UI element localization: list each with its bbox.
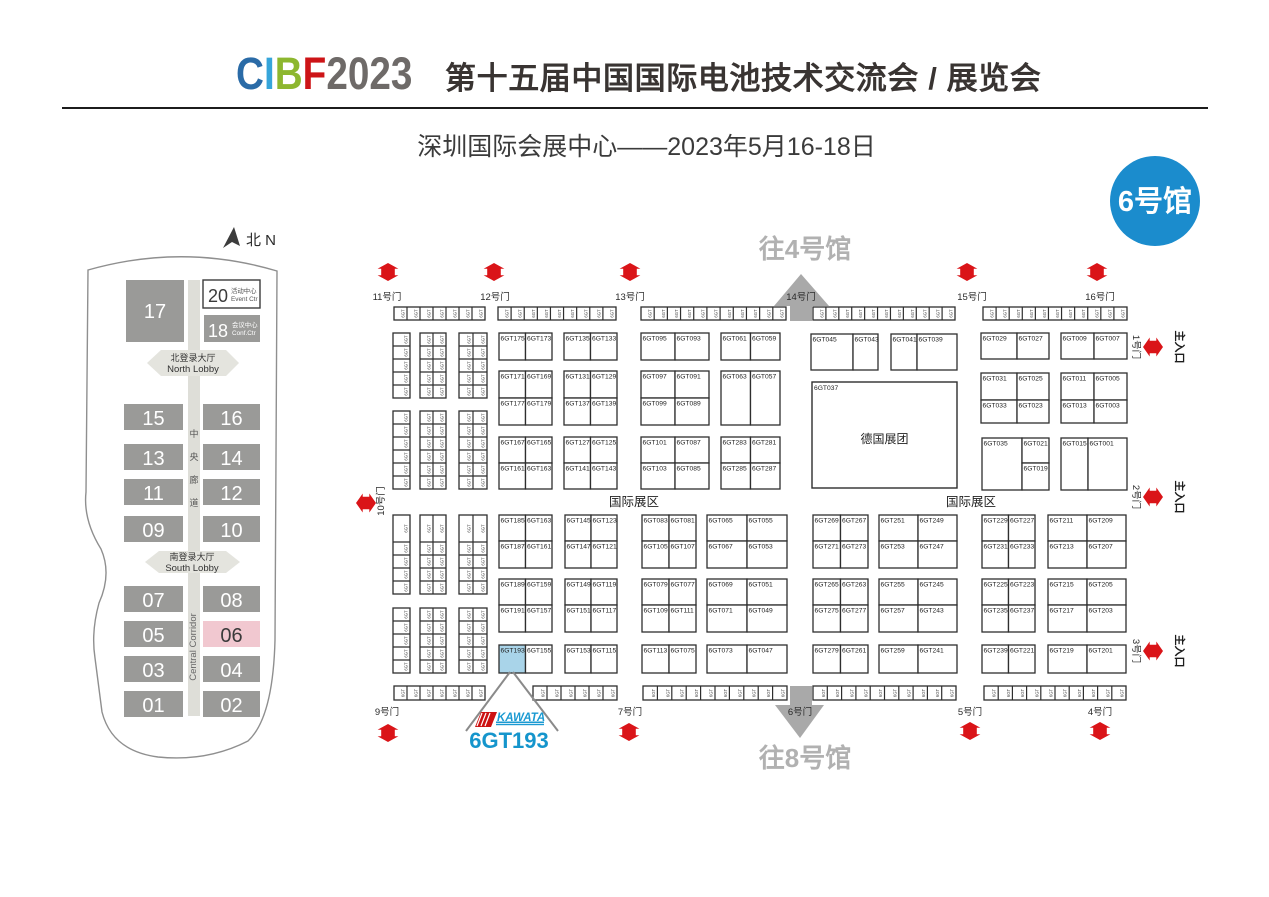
svg-text:6GT: 6GT	[871, 309, 876, 318]
svg-text:6GT: 6GT	[583, 309, 588, 318]
svg-text:16: 16	[220, 408, 242, 430]
svg-text:6GT003: 6GT003	[1096, 402, 1120, 409]
svg-text:6GT213: 6GT213	[1050, 543, 1074, 550]
svg-text:6GT007: 6GT007	[1096, 335, 1120, 342]
svg-text:6GT153: 6GT153	[567, 647, 591, 654]
svg-text:6GT: 6GT	[440, 439, 445, 448]
svg-text:6GT273: 6GT273	[842, 543, 866, 550]
svg-text:07: 07	[142, 590, 164, 612]
svg-text:6GT: 6GT	[440, 544, 445, 553]
svg-text:6GT: 6GT	[1042, 309, 1047, 318]
svg-text:6GT: 6GT	[884, 309, 889, 318]
svg-text:6GT: 6GT	[466, 309, 471, 318]
svg-text:6GT051: 6GT051	[749, 581, 773, 588]
svg-text:6GT: 6GT	[907, 688, 912, 697]
svg-text:6GT: 6GT	[467, 361, 472, 370]
svg-text:6GT027: 6GT027	[1019, 335, 1043, 342]
svg-text:6GT: 6GT	[1107, 309, 1112, 318]
svg-text:6GT: 6GT	[1121, 309, 1126, 318]
svg-text:6GT: 6GT	[680, 688, 685, 697]
svg-text:6GT: 6GT	[897, 309, 902, 318]
svg-text:6GT: 6GT	[404, 649, 409, 658]
svg-text:6GT: 6GT	[414, 309, 419, 318]
svg-text:6GT: 6GT	[404, 426, 409, 435]
svg-text:6GT: 6GT	[1077, 688, 1082, 697]
svg-text:6GT: 6GT	[440, 374, 445, 383]
svg-text:6GT: 6GT	[401, 688, 406, 697]
svg-text:6GT: 6GT	[427, 478, 432, 487]
svg-text:6GT009: 6GT009	[1063, 335, 1087, 342]
svg-text:6GT: 6GT	[427, 544, 432, 553]
svg-text:6GT267: 6GT267	[842, 517, 866, 524]
svg-text:6GT173: 6GT173	[527, 335, 551, 342]
svg-text:6GT: 6GT	[467, 413, 472, 422]
svg-text:South Lobby: South Lobby	[165, 563, 219, 574]
svg-text:6GT: 6GT	[835, 688, 840, 697]
svg-text:6GT: 6GT	[404, 465, 409, 474]
svg-text:6GT: 6GT	[404, 524, 409, 533]
svg-text:6GT259: 6GT259	[881, 647, 905, 654]
svg-text:6GT: 6GT	[674, 309, 679, 318]
svg-text:6GT141: 6GT141	[566, 465, 590, 472]
svg-text:6GT: 6GT	[440, 426, 445, 435]
svg-text:Conf.Ctr: Conf.Ctr	[232, 330, 257, 337]
svg-text:6GT: 6GT	[467, 557, 472, 566]
svg-text:6GT: 6GT	[892, 688, 897, 697]
svg-text:6GT: 6GT	[557, 309, 562, 318]
svg-text:6GT: 6GT	[541, 688, 546, 697]
svg-text:6GT205: 6GT205	[1089, 581, 1113, 588]
svg-text:6GT: 6GT	[569, 688, 574, 697]
svg-text:6号馆: 6号馆	[1118, 184, 1192, 218]
svg-text:6GT: 6GT	[467, 452, 472, 461]
svg-text:9号门: 9号门	[375, 706, 399, 718]
svg-text:6GT041: 6GT041	[893, 336, 917, 343]
svg-text:6GT: 6GT	[780, 309, 785, 318]
svg-text:6GT: 6GT	[990, 309, 995, 318]
svg-text:6GT161: 6GT161	[501, 465, 525, 472]
svg-text:6GT137: 6GT137	[566, 400, 590, 407]
svg-text:6GT039: 6GT039	[919, 336, 943, 343]
svg-text:6GT: 6GT	[427, 374, 432, 383]
svg-text:6GT: 6GT	[1120, 688, 1125, 697]
svg-text:6GT: 6GT	[1094, 309, 1099, 318]
svg-text:6GT151: 6GT151	[567, 607, 591, 614]
svg-text:6GT219: 6GT219	[1050, 647, 1074, 654]
svg-text:6GT131: 6GT131	[566, 373, 590, 380]
svg-text:6GT: 6GT	[404, 583, 409, 592]
svg-text:6GT: 6GT	[849, 688, 854, 697]
svg-text:6GT117: 6GT117	[593, 607, 617, 614]
svg-text:6GT125: 6GT125	[592, 439, 616, 446]
svg-text:6GT: 6GT	[440, 413, 445, 422]
svg-text:6GT015: 6GT015	[1063, 440, 1087, 447]
svg-text:6GT: 6GT	[404, 335, 409, 344]
svg-text:6GT065: 6GT065	[709, 517, 733, 524]
svg-text:6GT: 6GT	[404, 570, 409, 579]
svg-text:6GT021: 6GT021	[1024, 440, 1048, 447]
svg-text:6GT187: 6GT187	[501, 543, 525, 550]
svg-text:6GT: 6GT	[878, 688, 883, 697]
svg-text:6GT: 6GT	[440, 348, 445, 357]
svg-text:6GT203: 6GT203	[1089, 607, 1113, 614]
svg-text:6GT: 6GT	[481, 465, 486, 474]
svg-text:6GT035: 6GT035	[984, 440, 1008, 447]
svg-text:廊: 廊	[189, 474, 198, 485]
svg-text:6GT233: 6GT233	[1010, 543, 1034, 550]
svg-text:6GT: 6GT	[404, 478, 409, 487]
svg-text:6GT101: 6GT101	[643, 439, 667, 446]
svg-text:6GT049: 6GT049	[749, 607, 773, 614]
svg-text:03: 03	[142, 660, 164, 682]
svg-text:10: 10	[220, 520, 242, 542]
svg-text:6GT: 6GT	[479, 688, 484, 697]
svg-text:6GT129: 6GT129	[592, 373, 616, 380]
svg-text:6GT: 6GT	[440, 478, 445, 487]
svg-text:道: 道	[189, 497, 198, 508]
svg-text:6GT085: 6GT085	[677, 465, 701, 472]
svg-text:6GT281: 6GT281	[752, 439, 776, 446]
svg-text:13号门: 13号门	[615, 291, 645, 303]
svg-text:12: 12	[220, 483, 242, 505]
svg-text:6GT013: 6GT013	[1063, 402, 1087, 409]
svg-text:6GT177: 6GT177	[501, 400, 525, 407]
svg-text:6GT: 6GT	[740, 309, 745, 318]
svg-text:6GT: 6GT	[481, 636, 486, 645]
svg-text:6GT: 6GT	[404, 544, 409, 553]
svg-text:10号门: 10号门	[375, 486, 387, 516]
svg-text:主入口: 主入口	[1173, 635, 1187, 668]
svg-text:04: 04	[220, 660, 242, 682]
svg-text:6GT127: 6GT127	[566, 439, 590, 446]
svg-text:6GT: 6GT	[766, 688, 771, 697]
svg-text:6GT105: 6GT105	[644, 543, 668, 550]
svg-text:6GT083: 6GT083	[644, 517, 668, 524]
svg-text:6GT: 6GT	[467, 544, 472, 553]
svg-text:6GT: 6GT	[440, 583, 445, 592]
svg-text:6GT: 6GT	[727, 309, 732, 318]
svg-text:5号门: 5号门	[958, 706, 982, 718]
svg-text:6GT: 6GT	[427, 348, 432, 357]
svg-text:6GT: 6GT	[440, 557, 445, 566]
svg-text:6GT: 6GT	[427, 309, 432, 318]
svg-text:6GT: 6GT	[921, 688, 926, 697]
svg-text:6GT: 6GT	[1063, 688, 1068, 697]
svg-text:6GT: 6GT	[404, 413, 409, 422]
svg-text:05: 05	[142, 625, 164, 647]
svg-text:6GT: 6GT	[427, 524, 432, 533]
svg-text:6GT247: 6GT247	[920, 543, 944, 550]
svg-text:6GT043: 6GT043	[855, 336, 879, 343]
svg-text:6GT: 6GT	[467, 662, 472, 671]
svg-text:6GT: 6GT	[467, 335, 472, 344]
svg-text:6GT257: 6GT257	[881, 607, 905, 614]
svg-text:Central Corridor: Central Corridor	[188, 613, 199, 681]
svg-text:6GT163: 6GT163	[527, 465, 551, 472]
svg-text:6GT223: 6GT223	[1010, 581, 1034, 588]
svg-text:13: 13	[142, 448, 164, 470]
svg-text:6GT: 6GT	[1105, 688, 1110, 697]
svg-text:6GT253: 6GT253	[881, 543, 905, 550]
svg-text:6GT: 6GT	[1055, 309, 1060, 318]
svg-text:01: 01	[142, 695, 164, 717]
svg-text:6GT: 6GT	[404, 361, 409, 370]
svg-text:6GT057: 6GT057	[752, 373, 776, 380]
svg-text:6GT005: 6GT005	[1096, 375, 1120, 382]
svg-text:6GT: 6GT	[427, 335, 432, 344]
svg-text:6GT: 6GT	[1006, 688, 1011, 697]
svg-text:6GT053: 6GT053	[749, 543, 773, 550]
svg-text:6GT031: 6GT031	[983, 375, 1007, 382]
svg-text:6GT: 6GT	[427, 557, 432, 566]
svg-text:6GT: 6GT	[404, 439, 409, 448]
svg-text:6GT145: 6GT145	[567, 517, 591, 524]
svg-text:6GT011: 6GT011	[1063, 375, 1087, 382]
svg-text:14: 14	[220, 448, 242, 470]
svg-text:6GT: 6GT	[404, 636, 409, 645]
svg-text:6GT: 6GT	[819, 309, 824, 318]
svg-text:6GT: 6GT	[935, 688, 940, 697]
svg-text:6GT255: 6GT255	[881, 581, 905, 588]
svg-text:6GT: 6GT	[427, 662, 432, 671]
svg-text:15号门: 15号门	[957, 291, 987, 303]
svg-text:6GT: 6GT	[404, 348, 409, 357]
svg-text:6GT: 6GT	[440, 361, 445, 370]
svg-text:6GT: 6GT	[440, 662, 445, 671]
svg-text:主入口: 主入口	[1173, 331, 1187, 364]
svg-text:6GT: 6GT	[467, 439, 472, 448]
svg-text:6GT215: 6GT215	[1050, 581, 1074, 588]
svg-text:6GT077: 6GT077	[671, 581, 695, 588]
svg-text:6GT: 6GT	[481, 348, 486, 357]
svg-text:6GT265: 6GT265	[815, 581, 839, 588]
svg-text:6GT147: 6GT147	[567, 543, 591, 550]
svg-text:6GT: 6GT	[481, 557, 486, 566]
svg-text:6GT: 6GT	[467, 426, 472, 435]
svg-text:6GT: 6GT	[737, 688, 742, 697]
svg-text:6GT249: 6GT249	[920, 517, 944, 524]
svg-text:6GT245: 6GT245	[920, 581, 944, 588]
svg-text:6GT: 6GT	[709, 688, 714, 697]
svg-text:06: 06	[220, 625, 242, 647]
svg-text:6GT: 6GT	[404, 623, 409, 632]
svg-text:North Lobby: North Lobby	[167, 364, 219, 375]
svg-text:6GT: 6GT	[597, 688, 602, 697]
svg-text:6GT: 6GT	[910, 309, 915, 318]
svg-text:6GT: 6GT	[1034, 688, 1039, 697]
svg-text:6GT115: 6GT115	[593, 647, 617, 654]
svg-text:6GT: 6GT	[404, 662, 409, 671]
svg-text:6GT269: 6GT269	[815, 517, 839, 524]
svg-text:6GT: 6GT	[864, 688, 869, 697]
svg-text:6GT: 6GT	[481, 452, 486, 461]
svg-text:6GT023: 6GT023	[1019, 402, 1043, 409]
svg-text:6GT: 6GT	[949, 309, 954, 318]
svg-text:6GT: 6GT	[611, 688, 616, 697]
svg-text:6GT: 6GT	[427, 387, 432, 396]
svg-text:6GT: 6GT	[440, 636, 445, 645]
svg-text:北登录大厅: 北登录大厅	[170, 352, 215, 363]
svg-text:6GT047: 6GT047	[749, 647, 773, 654]
svg-text:6GT: 6GT	[404, 557, 409, 566]
svg-text:6GT193: 6GT193	[469, 728, 549, 753]
svg-text:南登录大厅: 南登录大厅	[169, 551, 214, 562]
svg-text:6GT211: 6GT211	[1050, 517, 1074, 524]
svg-text:6GT: 6GT	[648, 309, 653, 318]
svg-text:6GT045: 6GT045	[813, 336, 837, 343]
svg-text:6GT: 6GT	[440, 309, 445, 318]
svg-text:6GT: 6GT	[1029, 309, 1034, 318]
svg-text:6GT: 6GT	[427, 413, 432, 422]
svg-text:6GT209: 6GT209	[1089, 517, 1113, 524]
svg-text:6GT: 6GT	[723, 688, 728, 697]
svg-text:6GT069: 6GT069	[709, 581, 733, 588]
svg-text:6GT: 6GT	[781, 688, 786, 697]
svg-text:6GT121: 6GT121	[593, 543, 617, 550]
svg-text:6GT207: 6GT207	[1089, 543, 1113, 550]
svg-text:6GT167: 6GT167	[501, 439, 525, 446]
svg-text:6GT: 6GT	[481, 426, 486, 435]
svg-text:6GT149: 6GT149	[567, 581, 591, 588]
svg-text:6GT: 6GT	[936, 309, 941, 318]
svg-text:活动中心: 活动中心	[231, 286, 257, 295]
svg-text:6GT279: 6GT279	[815, 647, 839, 654]
svg-text:6GT: 6GT	[427, 361, 432, 370]
svg-text:6GT055: 6GT055	[749, 517, 773, 524]
svg-text:6GT071: 6GT071	[709, 607, 733, 614]
svg-text:12号门: 12号门	[480, 291, 510, 303]
svg-text:6GT: 6GT	[481, 649, 486, 658]
svg-text:6GT: 6GT	[481, 524, 486, 533]
svg-text:6GT: 6GT	[481, 413, 486, 422]
svg-text:6GT: 6GT	[440, 524, 445, 533]
svg-text:6GT: 6GT	[845, 309, 850, 318]
svg-text:6GT097: 6GT097	[643, 373, 667, 380]
svg-text:6GT201: 6GT201	[1089, 647, 1113, 654]
svg-text:6GT231: 6GT231	[984, 543, 1008, 550]
svg-text:6GT091: 6GT091	[677, 373, 701, 380]
svg-text:3号门: 3号门	[1130, 639, 1142, 663]
svg-text:6GT: 6GT	[505, 309, 510, 318]
svg-text:6GT: 6GT	[1049, 688, 1054, 697]
svg-text:6GT033: 6GT033	[983, 402, 1007, 409]
svg-text:6GT235: 6GT235	[984, 607, 1008, 614]
svg-text:6GT155: 6GT155	[527, 647, 551, 654]
svg-text:6GT081: 6GT081	[671, 517, 695, 524]
svg-text:6GT: 6GT	[583, 688, 588, 697]
svg-text:6GT: 6GT	[687, 309, 692, 318]
svg-text:6GT: 6GT	[467, 649, 472, 658]
svg-text:6GT: 6GT	[467, 610, 472, 619]
svg-text:6GT111: 6GT111	[671, 607, 694, 614]
svg-text:6GT225: 6GT225	[984, 581, 1008, 588]
svg-text:6GT: 6GT	[923, 309, 928, 318]
svg-text:6GT: 6GT	[570, 309, 575, 318]
svg-text:德国展团: 德国展团	[860, 431, 908, 446]
svg-text:6GT237: 6GT237	[1010, 607, 1034, 614]
svg-text:6GT: 6GT	[427, 426, 432, 435]
svg-text:6GT: 6GT	[481, 439, 486, 448]
svg-text:1号门: 1号门	[1130, 335, 1142, 359]
svg-text:主入口: 主入口	[1173, 481, 1187, 514]
svg-text:08: 08	[220, 590, 242, 612]
svg-text:6GT179: 6GT179	[527, 400, 551, 407]
svg-text:6GT: 6GT	[700, 309, 705, 318]
svg-text:6GT: 6GT	[427, 465, 432, 474]
svg-text:6GT: 6GT	[1091, 688, 1096, 697]
svg-text:Event Ctr: Event Ctr	[231, 296, 259, 303]
svg-text:6GT171: 6GT171	[501, 373, 525, 380]
svg-text:6GT: 6GT	[950, 688, 955, 697]
svg-text:14号门: 14号门	[786, 291, 816, 303]
svg-text:6GT: 6GT	[481, 387, 486, 396]
svg-text:6GT239: 6GT239	[984, 647, 1008, 654]
svg-text:中: 中	[189, 428, 198, 439]
svg-text:6GT175: 6GT175	[501, 335, 525, 342]
svg-text:6GT: 6GT	[414, 688, 419, 697]
svg-text:6GT: 6GT	[467, 623, 472, 632]
svg-text:6GT063: 6GT063	[723, 373, 747, 380]
svg-text:6GT079: 6GT079	[644, 581, 668, 588]
svg-text:6GT: 6GT	[531, 309, 536, 318]
svg-text:6GT: 6GT	[481, 478, 486, 487]
svg-text:6GT: 6GT	[466, 688, 471, 697]
svg-text:6GT: 6GT	[440, 452, 445, 461]
svg-text:6GT: 6GT	[427, 623, 432, 632]
svg-text:6GT: 6GT	[404, 387, 409, 396]
svg-text:6GT283: 6GT283	[723, 439, 747, 446]
svg-text:6GT135: 6GT135	[566, 335, 590, 342]
svg-text:6GT: 6GT	[481, 361, 486, 370]
svg-text:6GT: 6GT	[821, 688, 826, 697]
svg-text:6GT025: 6GT025	[1019, 375, 1043, 382]
svg-text:往4号馆: 往4号馆	[759, 234, 851, 264]
svg-text:6GT: 6GT	[440, 570, 445, 579]
svg-text:6GT: 6GT	[427, 610, 432, 619]
svg-text:6GT: 6GT	[555, 688, 560, 697]
svg-text:7号门: 7号门	[618, 706, 642, 718]
svg-text:6GT285: 6GT285	[723, 465, 747, 472]
svg-text:6GT: 6GT	[1003, 309, 1008, 318]
svg-text:18: 18	[208, 321, 228, 341]
svg-text:6GT271: 6GT271	[815, 543, 839, 550]
svg-text:6GT217: 6GT217	[1050, 607, 1074, 614]
svg-text:6GT061: 6GT061	[723, 335, 747, 342]
svg-text:6GT: 6GT	[427, 439, 432, 448]
svg-text:6GT: 6GT	[440, 649, 445, 658]
svg-text:6GT: 6GT	[1020, 688, 1025, 697]
svg-text:6GT: 6GT	[440, 335, 445, 344]
svg-text:6GT: 6GT	[401, 309, 406, 318]
svg-text:6GT: 6GT	[427, 570, 432, 579]
svg-text:6GT189: 6GT189	[501, 581, 525, 588]
svg-text:6GT143: 6GT143	[592, 465, 616, 472]
svg-text:6GT: 6GT	[596, 309, 601, 318]
svg-text:6GT221: 6GT221	[1010, 647, 1034, 654]
svg-text:6GT: 6GT	[753, 309, 758, 318]
svg-text:6GT241: 6GT241	[920, 647, 944, 654]
svg-text:6GT: 6GT	[440, 610, 445, 619]
svg-text:6GT: 6GT	[858, 309, 863, 318]
svg-text:6GT: 6GT	[467, 478, 472, 487]
svg-text:6GT: 6GT	[481, 583, 486, 592]
svg-text:6GT: 6GT	[481, 610, 486, 619]
svg-text:6GT287: 6GT287	[752, 465, 776, 472]
svg-text:6GT099: 6GT099	[643, 400, 667, 407]
svg-text:6GT165: 6GT165	[527, 439, 551, 446]
svg-text:往8号馆: 往8号馆	[759, 743, 851, 773]
svg-text:国际展区: 国际展区	[946, 495, 996, 509]
